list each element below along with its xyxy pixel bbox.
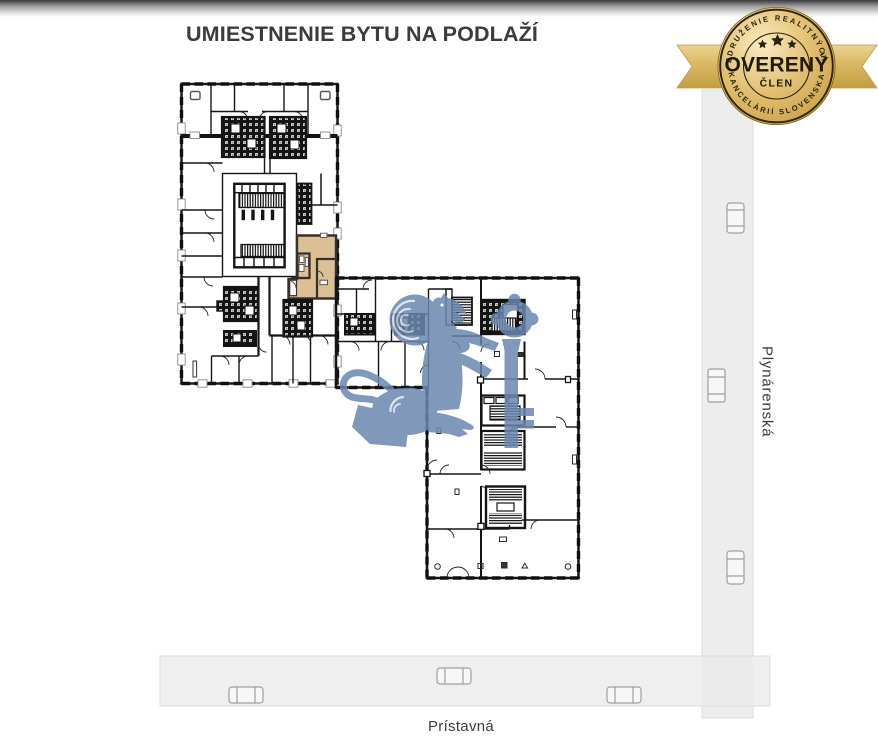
- svg-text:Plynárenská: Plynárenská: [759, 346, 776, 437]
- svg-text:UMIESTNENIE BYTU NA PODLAŽÍ: UMIESTNENIE BYTU NA PODLAŽÍ: [186, 21, 539, 46]
- svg-text:ČLEN: ČLEN: [760, 77, 794, 90]
- svg-text:Prístavná: Prístavná: [428, 718, 494, 735]
- svg-text:OVERENÝ: OVERENÝ: [724, 53, 828, 77]
